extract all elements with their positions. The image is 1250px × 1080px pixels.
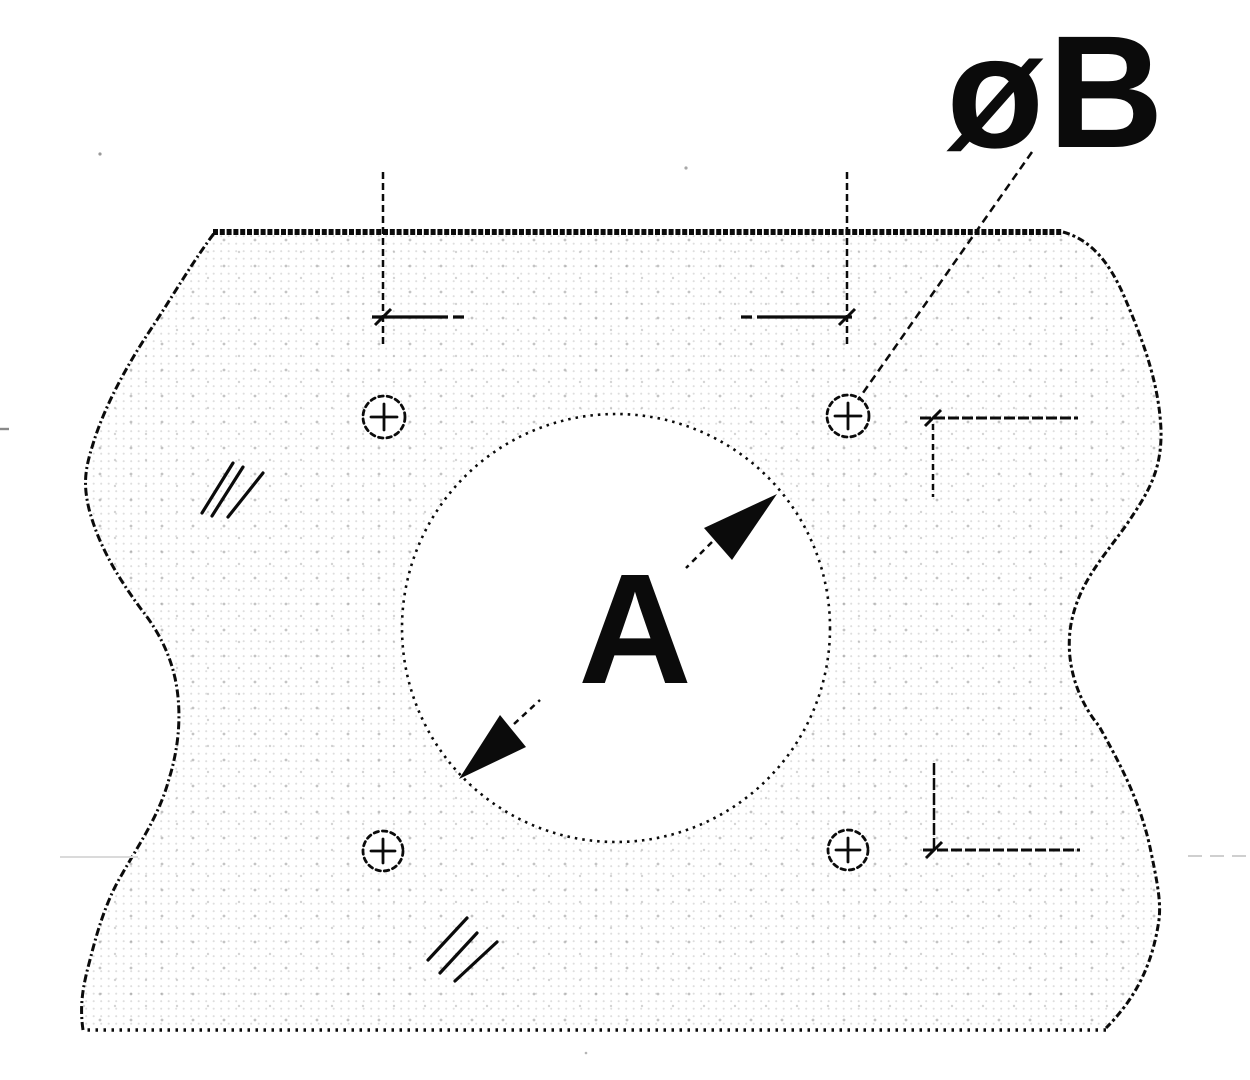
small-hole-diameter-label: øB: [946, 2, 1167, 181]
mounting-hole-top-right: [827, 395, 869, 437]
mounting-hole-bottom-left: [363, 831, 403, 871]
technical-drawing: A øB: [0, 0, 1250, 1080]
mounting-hole-top-left: [363, 396, 405, 438]
mounting-hole-bottom-right: [828, 830, 868, 870]
center-diameter-label: A: [578, 542, 691, 717]
drawing-page: A øB: [0, 0, 1250, 1080]
